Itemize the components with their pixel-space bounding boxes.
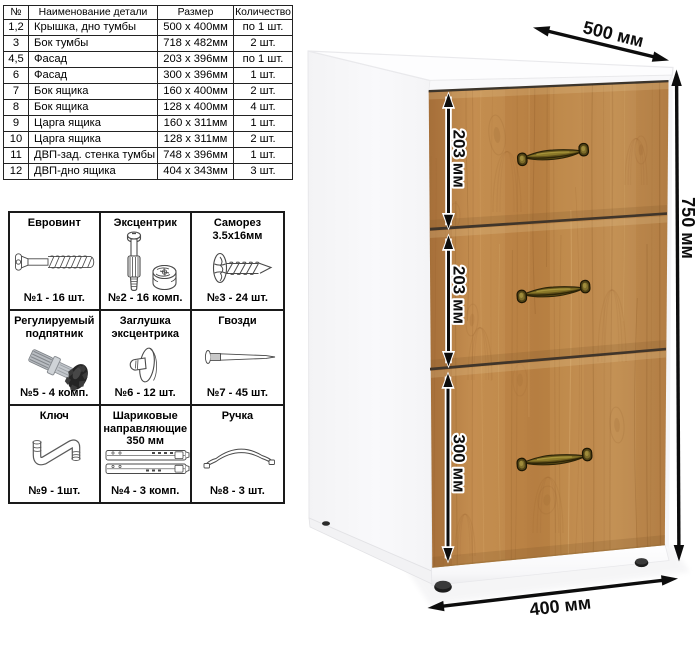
svg-text:203 мм: 203 мм <box>450 266 469 324</box>
svg-text:203 мм: 203 мм <box>450 130 469 188</box>
svg-text:750 мм: 750 мм <box>678 197 698 259</box>
svg-text:300 мм: 300 мм <box>450 434 469 492</box>
